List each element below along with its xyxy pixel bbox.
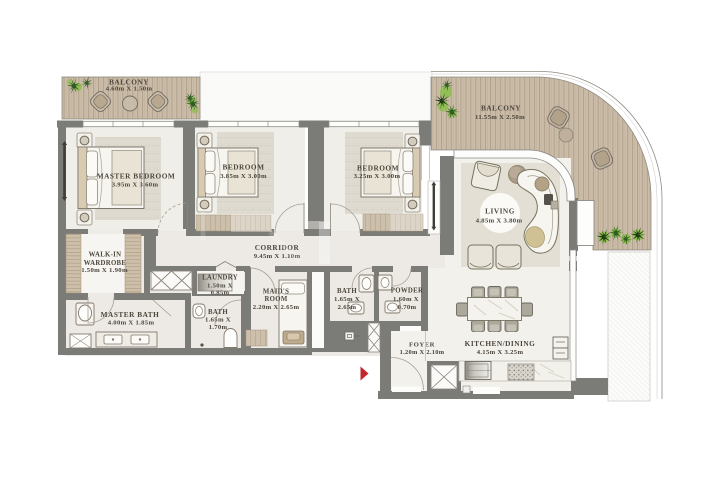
- svg-text:1.65m X: 1.65m X: [334, 296, 360, 303]
- svg-text:1.65m X: 1.65m X: [205, 317, 231, 324]
- svg-text:POWDER: POWDER: [391, 288, 423, 295]
- svg-text:ROOM: ROOM: [264, 296, 287, 303]
- svg-text:1.60m X: 1.60m X: [393, 296, 419, 303]
- svg-text:3.85m X 3.00m: 3.85m X 3.00m: [220, 173, 267, 180]
- svg-text:LAUNDRY: LAUNDRY: [202, 275, 238, 282]
- svg-text:3.25m X 3.00m: 3.25m X 3.00m: [354, 173, 401, 180]
- svg-text:LIVING: LIVING: [485, 207, 515, 216]
- svg-text:11.55m X 2.50m: 11.55m X 2.50m: [475, 114, 525, 121]
- svg-text:3.95m X 3.60m: 3.95m X 3.60m: [112, 182, 159, 189]
- svg-text:BEDROOM: BEDROOM: [357, 164, 399, 173]
- svg-text:1.70m: 1.70m: [209, 324, 228, 331]
- svg-text:1.50m X: 1.50m X: [207, 283, 233, 290]
- svg-text:KITCHEN/DINING: KITCHEN/DINING: [465, 339, 536, 348]
- svg-text:BEDROOM: BEDROOM: [222, 163, 264, 172]
- svg-text:FOYER: FOYER: [409, 342, 435, 349]
- svg-text:BATH: BATH: [208, 309, 228, 316]
- svg-text:1.20m X 2.10m: 1.20m X 2.10m: [400, 349, 445, 356]
- svg-text:4.15m X 3.25m: 4.15m X 3.25m: [477, 349, 524, 356]
- svg-text:WARDROBE: WARDROBE: [84, 260, 127, 267]
- svg-text:0.70m: 0.70m: [398, 304, 417, 311]
- svg-text:1.50m X 1.90m: 1.50m X 1.90m: [81, 267, 128, 274]
- svg-text:MASTER BEDROOM: MASTER BEDROOM: [97, 172, 176, 181]
- svg-text:0.85m: 0.85m: [211, 290, 230, 297]
- svg-text:CORRIDOR: CORRIDOR: [255, 243, 300, 252]
- svg-text:2.20m X 2.65m: 2.20m X 2.65m: [253, 304, 300, 311]
- svg-text:BATH: BATH: [337, 288, 357, 295]
- svg-text:WALK-IN: WALK-IN: [89, 252, 122, 259]
- svg-text:MAID'S: MAID'S: [263, 289, 289, 296]
- svg-text:MASTER BATH: MASTER BATH: [101, 310, 160, 319]
- svg-text:BALCONY: BALCONY: [481, 104, 521, 113]
- svg-text:4.85m X 3.80m: 4.85m X 3.80m: [476, 218, 523, 225]
- svg-text:4.60m X 1.50m: 4.60m X 1.50m: [106, 85, 153, 92]
- svg-text:4.00m X 1.85m: 4.00m X 1.85m: [108, 320, 155, 327]
- svg-text:2.65m: 2.65m: [338, 304, 357, 311]
